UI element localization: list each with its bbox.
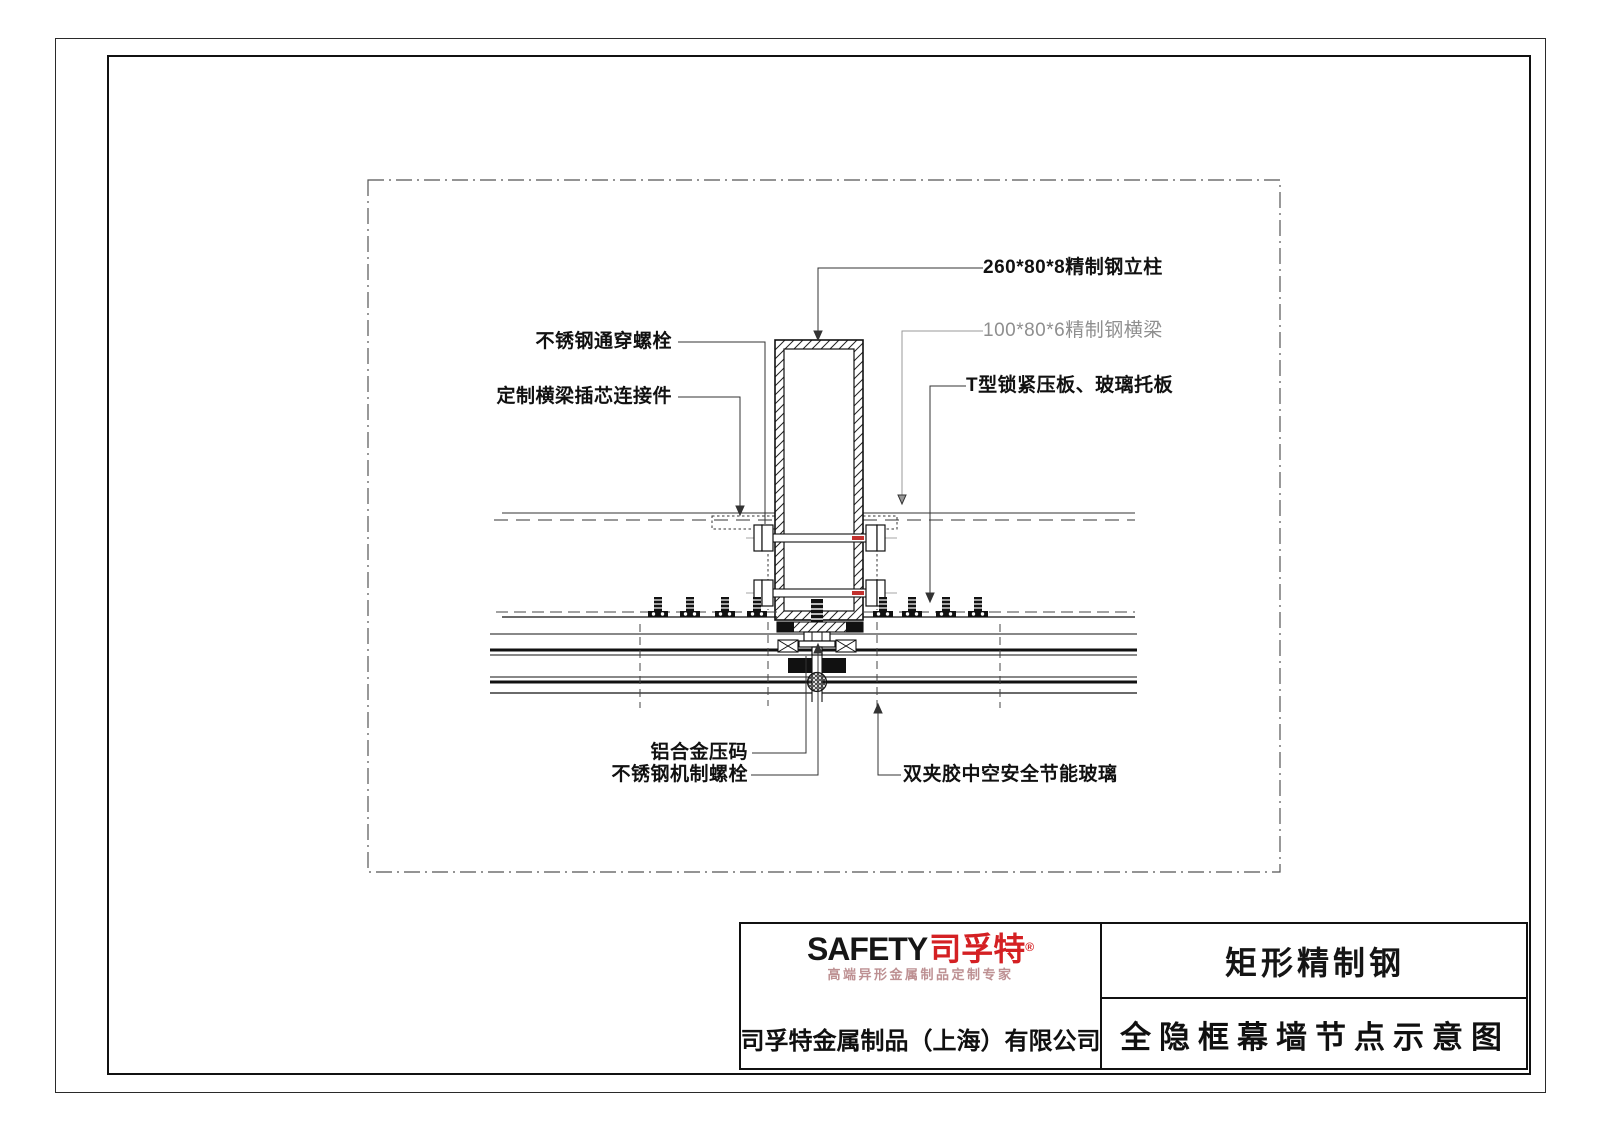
gasket-left (778, 640, 798, 652)
leader-t-plate (930, 386, 966, 595)
logo-brand-text: 司孚特 (929, 932, 1025, 966)
title-block: SAFETY 司孚特 ® 高端异形金属制品定制专家 司孚特金属制品（上海）有限公… (739, 922, 1528, 1070)
mullion-section (775, 340, 863, 620)
label-al-block: 铝合金压码 (548, 742, 748, 764)
drawing-title: 全隐框幕墙节点示意图 (1120, 1012, 1510, 1057)
label-glass: 双夹胶中空安全节能玻璃 (903, 764, 1118, 786)
title-block-company-cell: SAFETY 司孚特 ® 高端异形金属制品定制专家 司孚特金属制品（上海）有限公… (741, 924, 1102, 1068)
label-t-plate: T型锁紧压板、玻璃托板 (966, 375, 1173, 397)
leader-beam (902, 331, 983, 497)
leader-connector (678, 397, 740, 508)
label-column: 260*80*8精制钢立柱 (983, 257, 1163, 279)
leader-column (818, 268, 983, 333)
title-block-product-cell: 矩形精制钢 (1102, 924, 1528, 999)
backer-rod (808, 673, 827, 692)
logo-safety-text: SAFETY (807, 932, 927, 966)
leader-through-bolt (678, 342, 765, 524)
title-block-title-cell: 全隐框幕墙节点示意图 (1102, 1001, 1528, 1068)
label-through-bolt: 不锈钢通穿螺栓 (440, 331, 672, 353)
product-name: 矩形精制钢 (1225, 938, 1405, 984)
gasket-right (836, 640, 856, 652)
company-name: 司孚特金属制品（上海）有限公司 (741, 1021, 1101, 1056)
company-logo: SAFETY 司孚特 ® (807, 932, 1034, 966)
drawing-sheet: 260*80*8精制钢立柱 100*80*6精制钢横梁 T型锁紧压板、玻璃托板 … (0, 0, 1600, 1130)
leader-glass (878, 711, 901, 775)
logo-tagline: 高端异形金属制品定制专家 (827, 964, 1013, 983)
label-connector: 定制横梁插芯连接件 (410, 386, 672, 408)
label-beam: 100*80*6精制钢横梁 (983, 320, 1163, 342)
registered-mark-icon: ® (1025, 930, 1034, 964)
label-machine-bolt: 不锈钢机制螺栓 (508, 764, 748, 786)
